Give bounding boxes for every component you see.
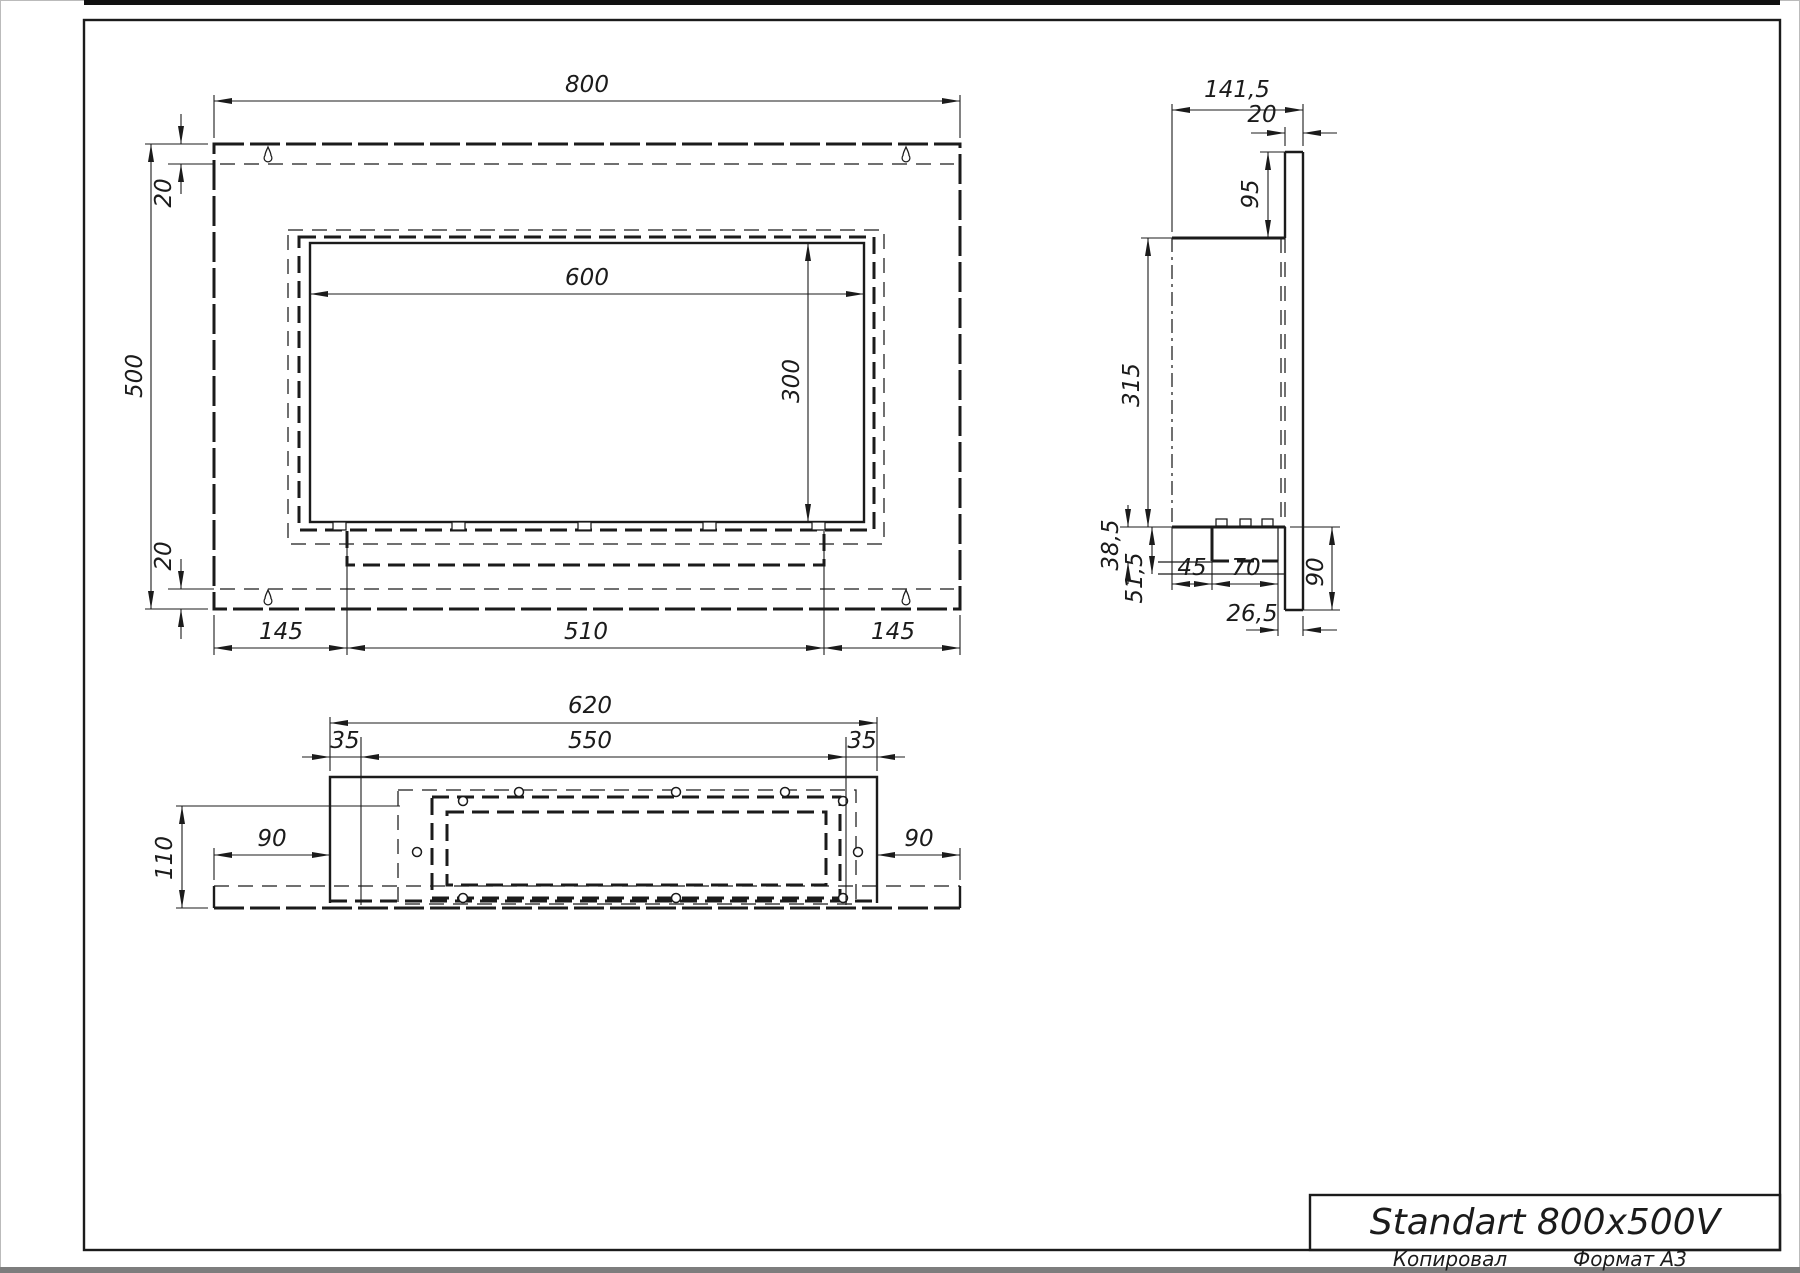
dim-plate-top-extension-label: 95 [1238,179,1264,208]
dim-front-height: 500 [122,144,208,609]
burner-hidden-outline [447,812,826,885]
dim-margin-left-label: 145 [259,619,303,645]
copied-label: Копировал [1393,1247,1507,1271]
dim-margin-right-label: 145 [871,619,915,645]
opening-hidden-outline [398,790,856,904]
dim-front-height-label: 500 [122,354,148,398]
dim-opening-height-label: 300 [779,359,805,403]
dim-front-bottom-offset-label: 20 [151,541,177,570]
dim-bottom-depth: 110 [152,806,400,908]
dim-flange-right: 90 [877,826,960,880]
keyhole-mount-icon [902,590,910,605]
top-edge-bar [84,0,1780,5]
dim-body-height: 315 [1119,238,1172,527]
front-view: 800 500 20 20 600 [122,72,960,655]
dim-inset-left-label: 35 [330,728,359,754]
dim-flange-left: 90 [214,826,330,880]
keyhole-mount-icon [902,147,910,162]
wall-plate-profile [1285,152,1303,610]
dim-burner-inset-label: 45 [1177,555,1206,581]
dim-lip-height-label: 38,5 [1098,519,1124,570]
dim-burner-to-plate-label: 26,5 [1226,601,1277,627]
dim-front-top-offset-label: 20 [151,178,177,207]
dim-bottom-offset-label: 51,5 [1122,552,1148,603]
dim-plate-bottom-extension: 90 [1290,527,1340,610]
dim-side-depth-label: 141,5 [1204,77,1270,103]
drawing-frame [84,20,1780,1250]
dim-flange-left-label: 90 [257,826,286,852]
dim-bottom-depth-label: 110 [152,836,178,880]
dim-plate-top-extension: 95 [1238,152,1285,238]
drawing-sheet: 800 500 20 20 600 [0,0,1800,1273]
drawing-title: Standart 800x500V [1370,1202,1723,1243]
bottom-edge-bar [0,1267,1800,1273]
dim-plate-thickness-label: 20 [1247,102,1276,128]
dim-opening-width: 600 [310,265,864,294]
dim-bottom-opening-width-label: 550 [568,728,612,754]
dim-body-width-label: 620 [568,693,612,719]
dim-opening-height: 300 [779,243,808,522]
keyhole-mount-icon [264,147,272,162]
dim-burner-row: 45 70 [1172,527,1278,590]
dim-opening-width-label: 600 [565,265,609,291]
dim-bottom-offset: 51,5 [1122,527,1152,604]
dim-front-width: 800 [214,72,960,138]
dim-front-bottom-row: 145 510 145 [214,615,960,655]
side-view: 141,5 20 95 315 38,5 [1098,77,1340,636]
dim-inset-row: 35 550 35 [302,728,905,757]
dim-body-height-label: 315 [1119,363,1145,407]
dim-burner-width-label: 70 [1231,555,1260,581]
dim-flange-right-label: 90 [904,826,933,852]
dim-burner-to-plate: 26,5 [1226,601,1337,636]
dim-tray-width-label: 510 [564,619,608,645]
dim-inset-right-label: 35 [847,728,876,754]
dim-plate-thickness: 20 [1247,102,1337,146]
bottom-view: 620 35 550 35 110 90 [152,693,960,908]
keyhole-mount-icon [264,590,272,605]
format-label: Формат A3 [1573,1247,1687,1271]
burner-tray-hidden [347,531,824,565]
dim-front-width-label: 800 [565,72,609,98]
dim-plate-bottom-extension-label: 90 [1303,557,1329,586]
dim-front-top-offset: 20 [151,114,214,208]
title-block: Standart 800x500V Копировал Формат A3 [1310,1195,1780,1271]
faceplate-outline [214,144,960,609]
dim-front-bottom-offset: 20 [151,541,214,639]
body-profile [1172,238,1285,527]
drawing-canvas: 800 500 20 20 600 [0,0,1800,1273]
